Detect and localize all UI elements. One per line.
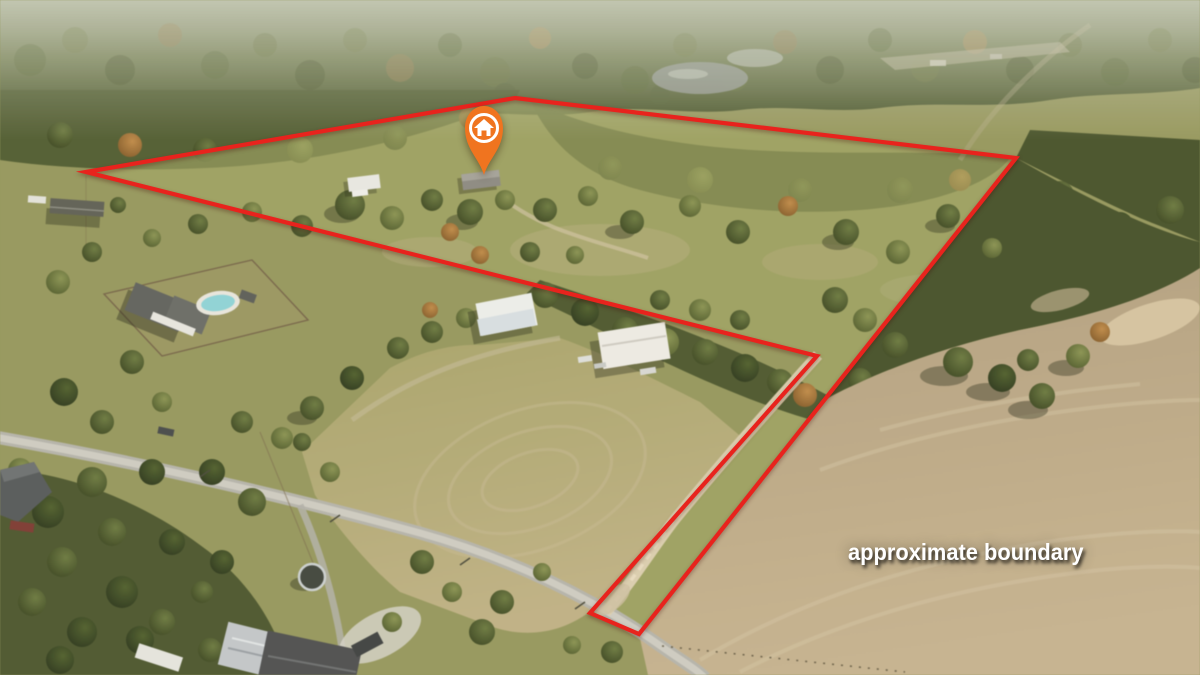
property-location-pin (462, 103, 506, 177)
aerial-photo: approximate boundary (0, 0, 1200, 675)
approximate-boundary-label: approximate boundary (848, 539, 1084, 566)
aerial-terrain (0, 0, 1200, 675)
